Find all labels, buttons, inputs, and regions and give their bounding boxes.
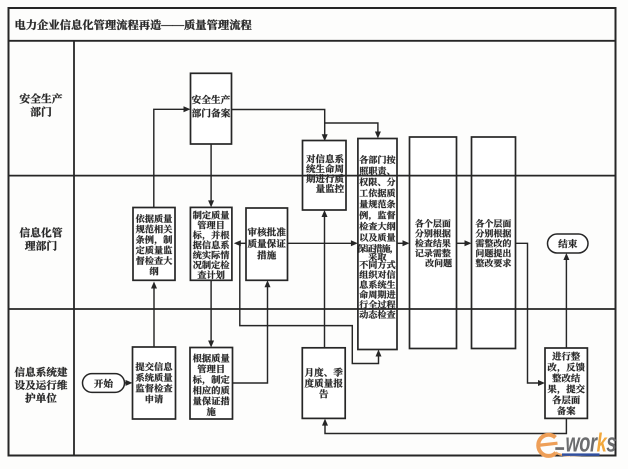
svg-text:works: works — [566, 428, 617, 457]
